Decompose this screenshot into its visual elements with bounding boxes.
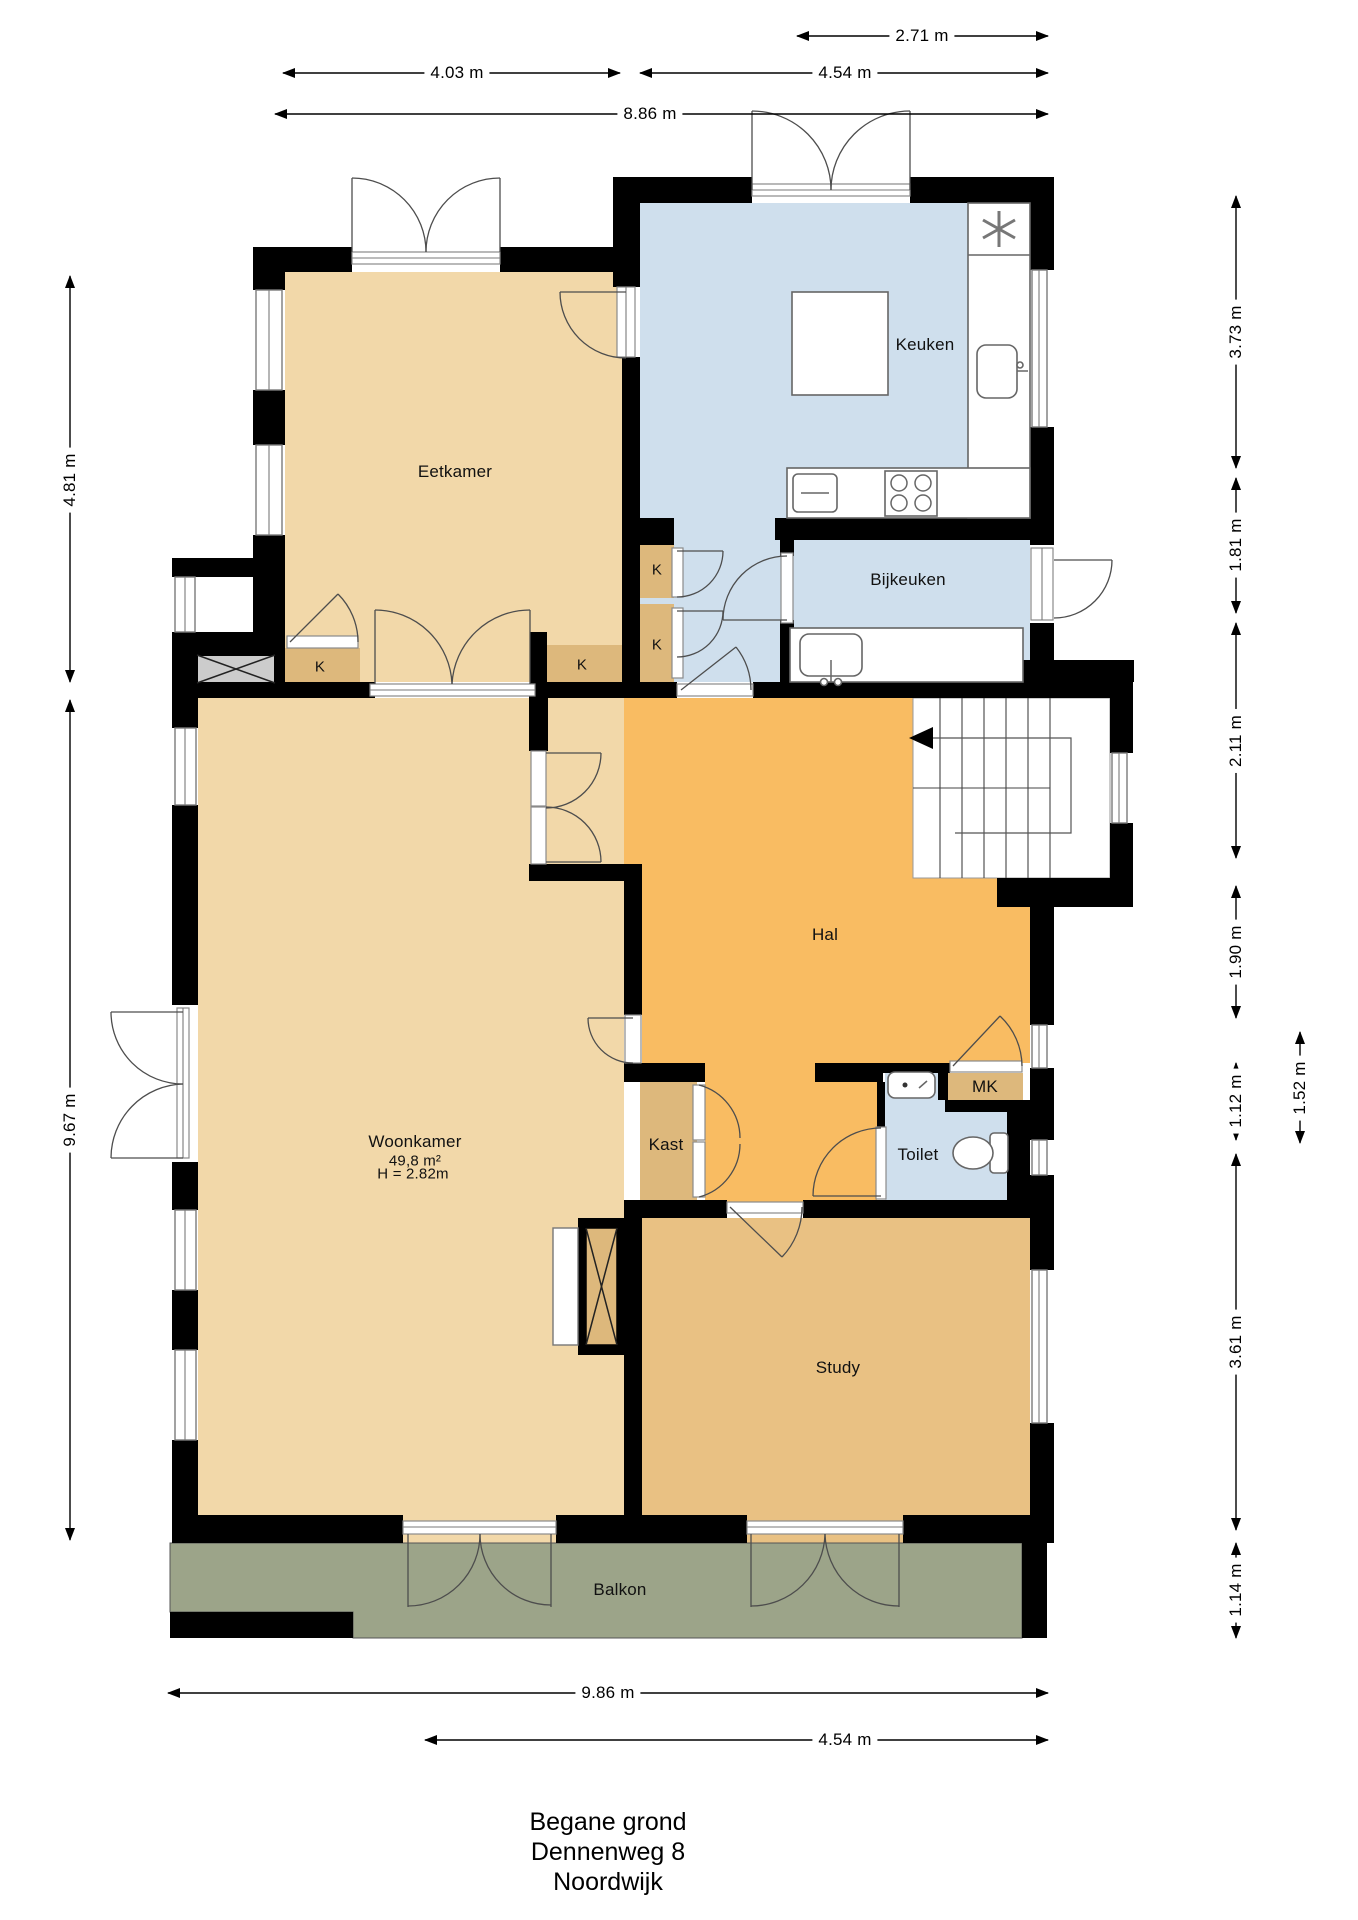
woonkamer-height: H = 2.82m [377, 1166, 448, 1183]
room-label-keuken: Keuken [896, 335, 955, 355]
hal-window-1 [1032, 1025, 1047, 1068]
closet-label-k3: K [652, 562, 662, 579]
washbasin-icon [888, 1072, 935, 1098]
title-city: Noordwijk [529, 1867, 686, 1897]
title-block: Begane grond Dennenweg 8 Noordwijk [529, 1807, 686, 1897]
room-label-kast: Kast [649, 1135, 684, 1155]
dim-right-114: 1.14 m [1226, 1557, 1246, 1622]
keuken-window [1032, 270, 1047, 427]
bijkeuken-counter [790, 628, 1023, 686]
dim-top-886: 8.86 m [617, 104, 682, 124]
room-label-hal: Hal [812, 925, 838, 945]
dim-right-190: 1.90 m [1226, 919, 1246, 984]
room-label-mk: MK [972, 1077, 998, 1097]
floorplan-page: Eetkamer Keuken Bijkeuken Hal Woonkamer … [0, 0, 1358, 1920]
dim-right-361: 3.61 m [1226, 1309, 1246, 1374]
title-floor: Begane grond [529, 1807, 686, 1837]
dim-top-454: 4.54 m [812, 63, 877, 83]
dim-bottom-986: 9.86 m [575, 1683, 640, 1703]
closet-label-k1: K [315, 659, 325, 676]
dim-right-373: 3.73 m [1226, 299, 1246, 364]
eetkamer-window-1 [256, 290, 282, 390]
dim-bottom-454: 4.54 m [812, 1730, 877, 1750]
eetkamer-exterior-double-door [352, 178, 500, 264]
bijkeuken-exterior-door [1031, 548, 1112, 620]
study-window [1032, 1270, 1047, 1423]
room-label-balkon: Balkon [593, 1580, 646, 1600]
room-label-bijkeuken: Bijkeuken [870, 570, 946, 590]
kitchen-counter-bottom [787, 468, 1030, 518]
dim-left-967: 9.67 m [60, 1087, 80, 1152]
woonkamer-window-2 [175, 728, 196, 805]
stairs-window [1112, 753, 1127, 823]
room-label-woonkamer: Woonkamer [368, 1132, 461, 1152]
keuken-exterior-double-door [752, 111, 910, 196]
closet-label-k2: K [577, 657, 587, 674]
eetkamer-window-2 [256, 445, 282, 535]
kitchen-island [792, 292, 888, 395]
dim-left-481: 4.81 m [60, 447, 80, 512]
cooktop-icon [885, 471, 937, 516]
woonkamer-exterior-french-doors [111, 1008, 189, 1158]
oven-icon [793, 474, 837, 512]
room-label-toilet: Toilet [898, 1145, 939, 1165]
room-label-study: Study [816, 1358, 860, 1378]
closet-label-k4: K [652, 637, 662, 654]
woonkamer-window-1 [175, 577, 195, 632]
title-street: Dennenweg 8 [529, 1837, 686, 1867]
dim-top-271: 2.71 m [889, 26, 954, 46]
floorplan-drawing [0, 0, 1358, 1920]
dim-right-211: 2.11 m [1226, 709, 1246, 773]
room-label-eetkamer: Eetkamer [418, 462, 492, 482]
study-floor [642, 1218, 1030, 1543]
dim-top-403: 4.03 m [424, 63, 489, 83]
hal-window-2 [1032, 1140, 1047, 1175]
dim-right-152: 1.52 m [1290, 1055, 1310, 1120]
dim-right-112: 1.12 m [1226, 1068, 1246, 1133]
woonkamer-window-4 [175, 1350, 196, 1440]
woonkamer-window-3 [175, 1210, 196, 1290]
woonkamer-floor [198, 698, 624, 1543]
dim-right-181: 1.81 m [1226, 512, 1246, 577]
hatch-element-top [197, 655, 275, 683]
